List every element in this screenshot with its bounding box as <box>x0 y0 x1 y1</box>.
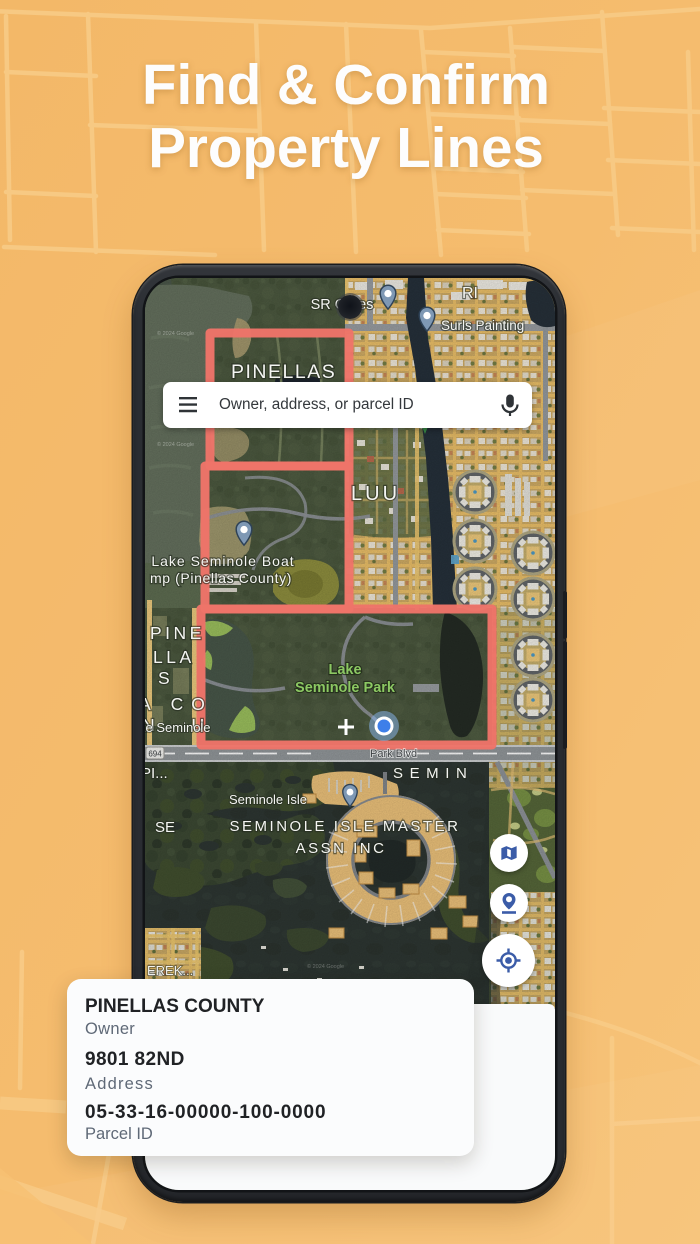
svg-text:LLA: LLA <box>153 647 195 667</box>
svg-text:S: S <box>158 668 170 688</box>
svg-text:A CO: A CO <box>145 694 213 714</box>
svg-text:Seminole Park: Seminole Park <box>295 680 396 696</box>
svg-text:Lake: Lake <box>328 662 361 678</box>
svg-text:SE: SE <box>155 819 175 836</box>
svg-text:PINELLAS: PINELLAS <box>231 361 336 383</box>
svg-text:Surls Painting: Surls Painting <box>441 318 524 333</box>
svg-text:Seminole Isle: Seminole Isle <box>229 792 307 807</box>
svg-text:Park Blvd: Park Blvd <box>370 748 417 760</box>
svg-text:© 2024 Google: © 2024 Google <box>157 441 194 448</box>
svg-text:RI: RI <box>462 285 478 302</box>
svg-text:EREK...: EREK... <box>147 963 193 978</box>
svg-text:ke Seminole: ke Seminole <box>145 720 211 735</box>
svg-text:LUU: LUU <box>351 483 400 505</box>
svg-text:PI...: PI... <box>145 765 168 782</box>
svg-text:SEMINOLE ISLE MASTER: SEMINOLE ISLE MASTER <box>230 818 461 835</box>
svg-text:S E M I N: S E M I N <box>393 765 468 782</box>
svg-text:ASSN INC: ASSN INC <box>296 840 387 857</box>
svg-text:© 2024 Google: © 2024 Google <box>307 963 344 970</box>
svg-text:PINE: PINE <box>150 623 205 643</box>
svg-text:mp (Pinellas County): mp (Pinellas County) <box>150 570 292 586</box>
svg-text:Lake Seminole Boat: Lake Seminole Boat <box>151 553 294 569</box>
svg-text:© 2024 Google: © 2024 Google <box>157 330 194 337</box>
